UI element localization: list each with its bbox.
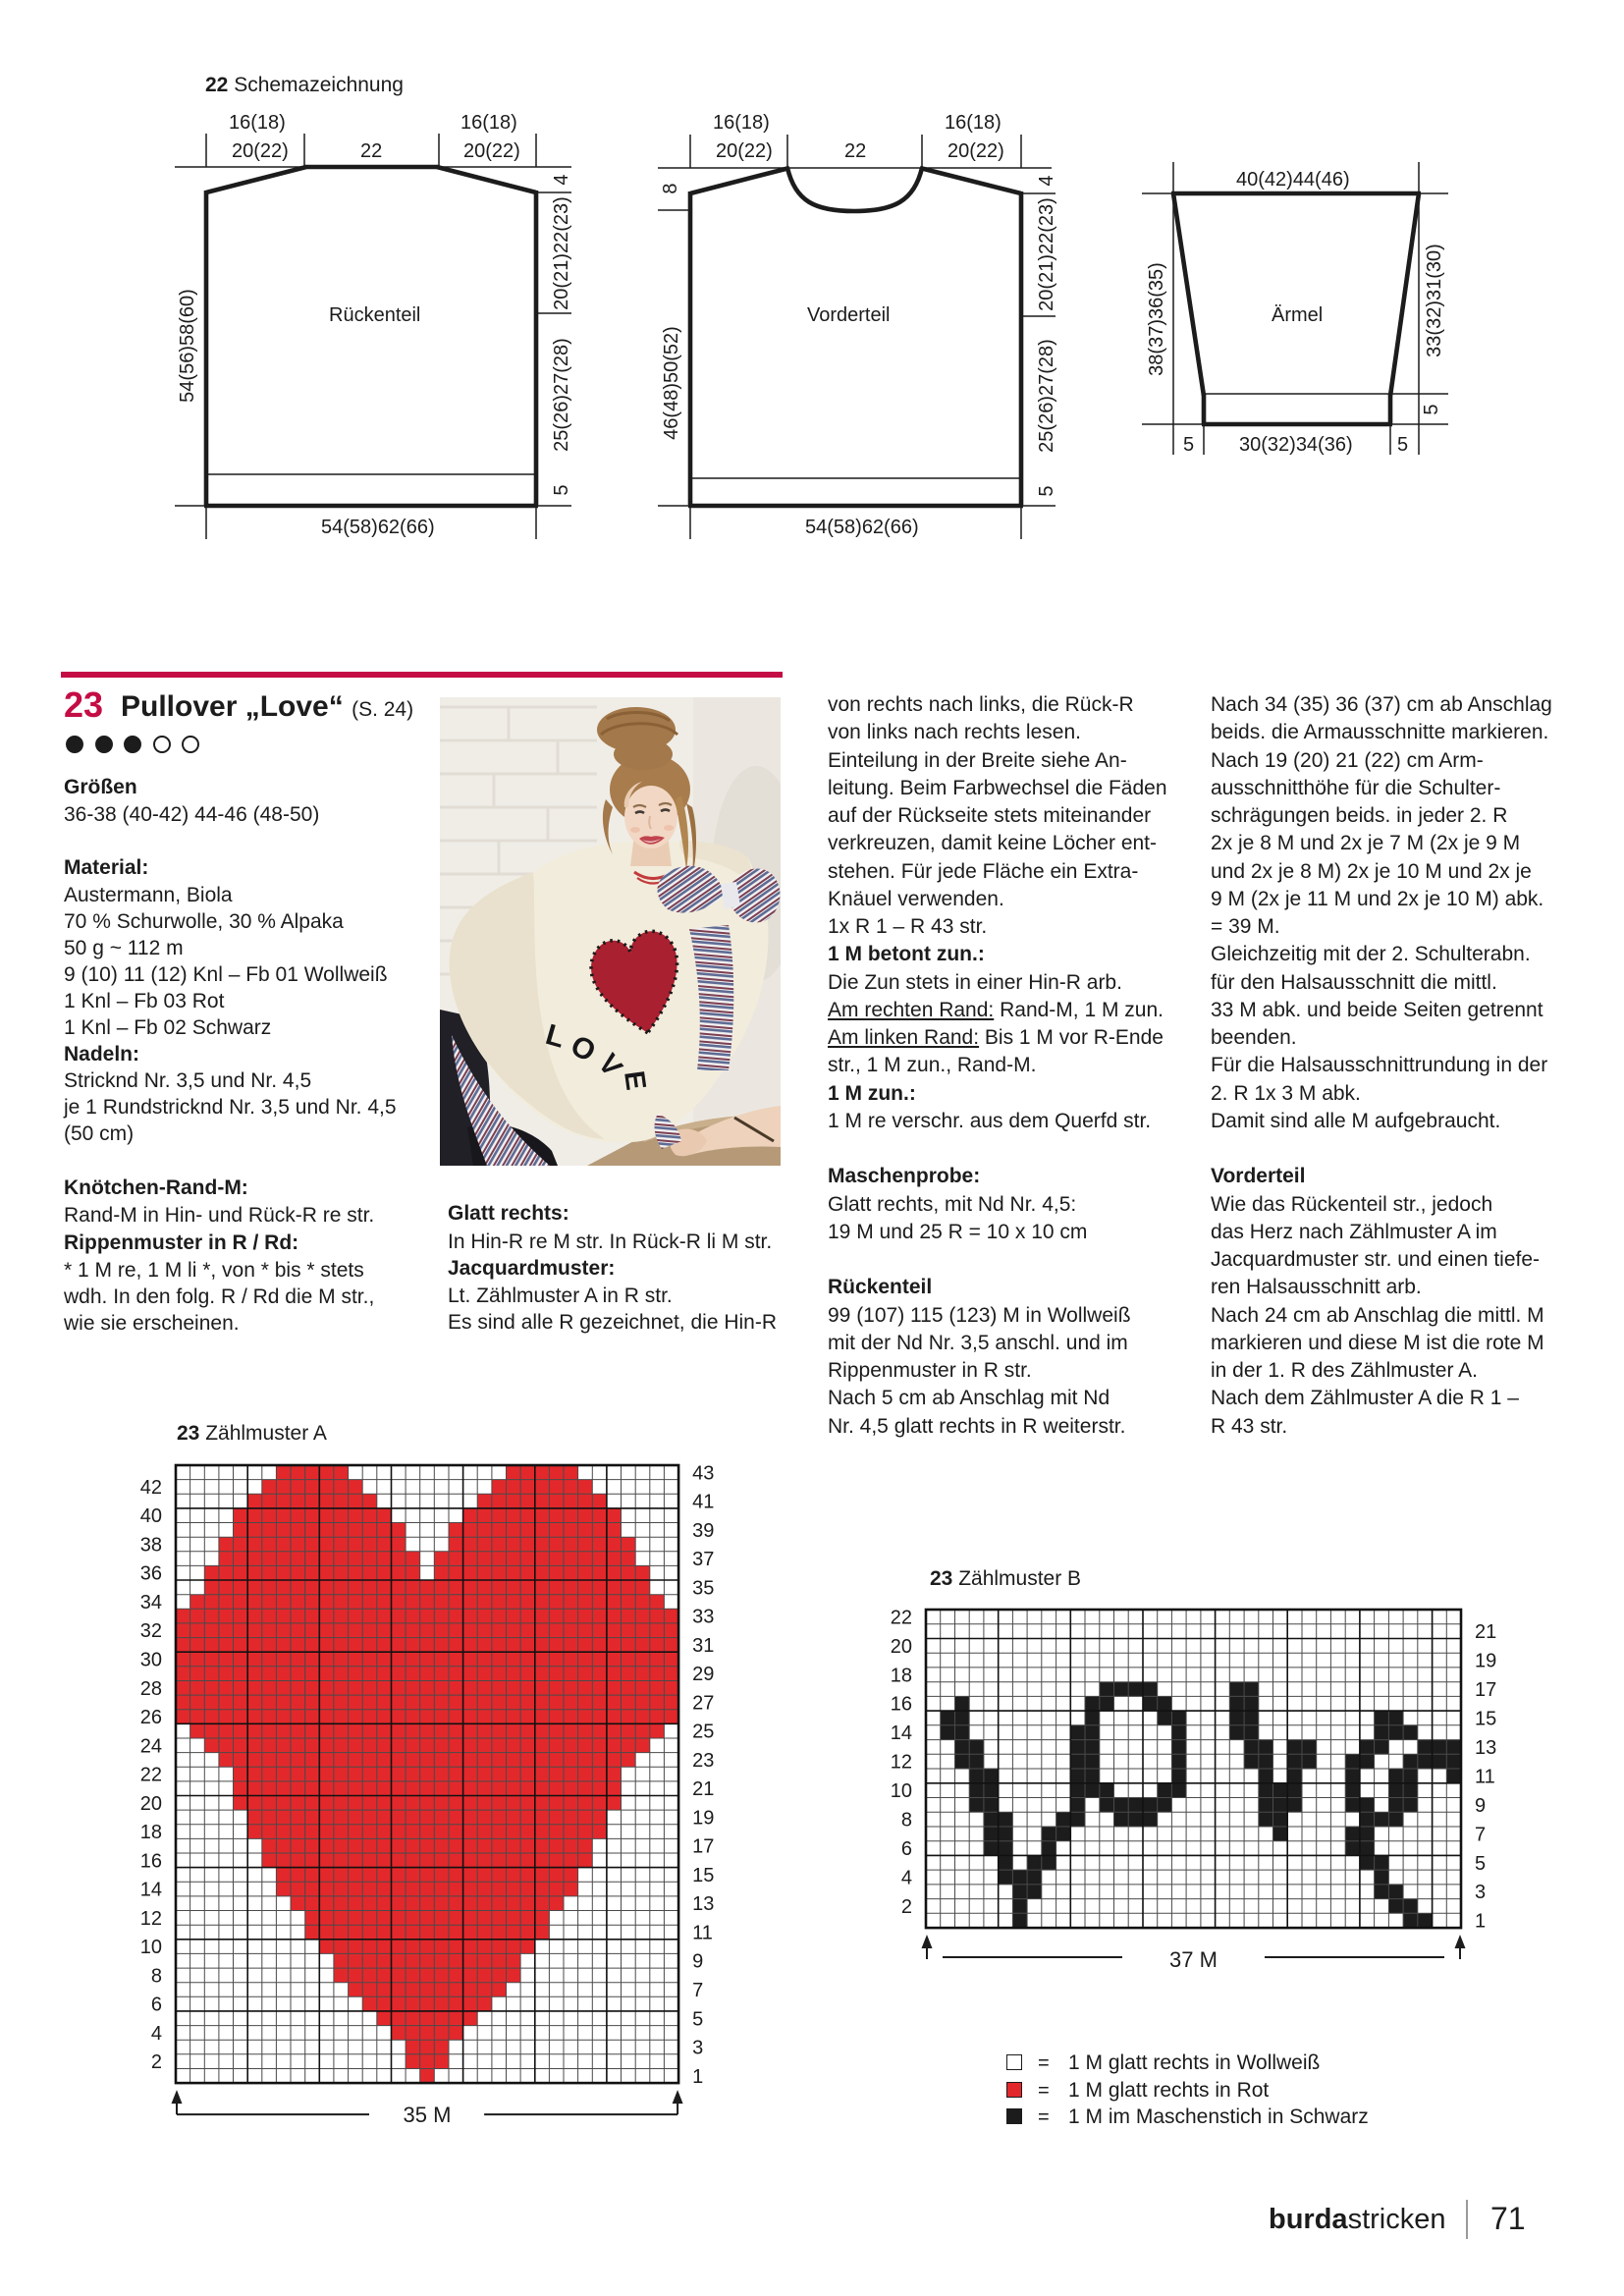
svg-text:20: 20 — [891, 1636, 912, 1658]
svg-text:27: 27 — [692, 1692, 714, 1714]
svg-text:8: 8 — [901, 1810, 912, 1831]
svg-text:14: 14 — [891, 1722, 912, 1744]
svg-text:3: 3 — [1475, 1882, 1486, 1903]
svg-text:5: 5 — [1475, 1853, 1486, 1875]
svg-text:3: 3 — [692, 2038, 703, 2059]
svg-text:43: 43 — [692, 1462, 714, 1484]
svg-text:1: 1 — [1475, 1911, 1486, 1933]
svg-text:13: 13 — [692, 1893, 714, 1915]
svg-text:2: 2 — [151, 2051, 162, 2073]
svg-text:29: 29 — [692, 1664, 714, 1685]
svg-text:35: 35 — [692, 1577, 714, 1599]
svg-text:31: 31 — [692, 1635, 714, 1657]
svg-text:30: 30 — [140, 1650, 162, 1671]
svg-text:6: 6 — [151, 1995, 162, 2016]
svg-text:21: 21 — [1475, 1621, 1496, 1643]
svg-text:4: 4 — [901, 1868, 912, 1889]
svg-text:12: 12 — [891, 1752, 912, 1774]
svg-text:22: 22 — [891, 1607, 912, 1628]
svg-text:26: 26 — [140, 1707, 162, 1728]
svg-text:41: 41 — [692, 1492, 714, 1513]
svg-text:18: 18 — [891, 1665, 912, 1686]
svg-text:37: 37 — [692, 1549, 714, 1570]
svg-text:11: 11 — [1475, 1766, 1495, 1787]
svg-text:16: 16 — [140, 1850, 162, 1872]
svg-text:7: 7 — [692, 1980, 703, 2001]
svg-text:7: 7 — [1475, 1824, 1486, 1845]
svg-text:40: 40 — [140, 1505, 162, 1527]
svg-text:16: 16 — [891, 1694, 912, 1716]
svg-text:23: 23 — [692, 1750, 714, 1772]
svg-text:38: 38 — [140, 1535, 162, 1557]
svg-text:33: 33 — [692, 1607, 714, 1628]
svg-text:11: 11 — [692, 1923, 713, 1944]
svg-text:2: 2 — [901, 1896, 912, 1918]
svg-text:22: 22 — [140, 1765, 162, 1786]
svg-text:36: 36 — [140, 1563, 162, 1585]
svg-text:21: 21 — [692, 1778, 714, 1800]
svg-text:19: 19 — [692, 1807, 714, 1829]
svg-text:34: 34 — [140, 1592, 162, 1613]
svg-text:25: 25 — [692, 1722, 714, 1743]
svg-text:9: 9 — [692, 1951, 703, 1973]
svg-text:42: 42 — [140, 1477, 162, 1499]
svg-text:35 M: 35 M — [404, 2103, 452, 2127]
svg-text:39: 39 — [692, 1520, 714, 1542]
svg-text:32: 32 — [140, 1620, 162, 1642]
svg-text:5: 5 — [692, 2008, 703, 2030]
svg-text:6: 6 — [901, 1838, 912, 1860]
svg-text:19: 19 — [1475, 1651, 1496, 1672]
svg-text:10: 10 — [140, 1937, 162, 1958]
svg-text:18: 18 — [140, 1822, 162, 1843]
svg-text:14: 14 — [140, 1880, 162, 1901]
svg-text:10: 10 — [891, 1780, 912, 1802]
svg-text:8: 8 — [151, 1965, 162, 1987]
svg-text:17: 17 — [692, 1836, 714, 1858]
svg-text:17: 17 — [1475, 1679, 1496, 1701]
svg-text:12: 12 — [140, 1908, 162, 1930]
svg-text:1: 1 — [692, 2066, 703, 2088]
svg-text:15: 15 — [1475, 1709, 1496, 1730]
svg-text:13: 13 — [1475, 1737, 1496, 1759]
svg-text:28: 28 — [140, 1678, 162, 1700]
svg-text:37 M: 37 M — [1169, 1947, 1218, 1972]
svg-text:15: 15 — [692, 1865, 714, 1886]
svg-text:4: 4 — [151, 2023, 162, 2045]
svg-text:20: 20 — [140, 1793, 162, 1815]
svg-text:9: 9 — [1475, 1795, 1486, 1817]
svg-text:24: 24 — [140, 1735, 162, 1757]
